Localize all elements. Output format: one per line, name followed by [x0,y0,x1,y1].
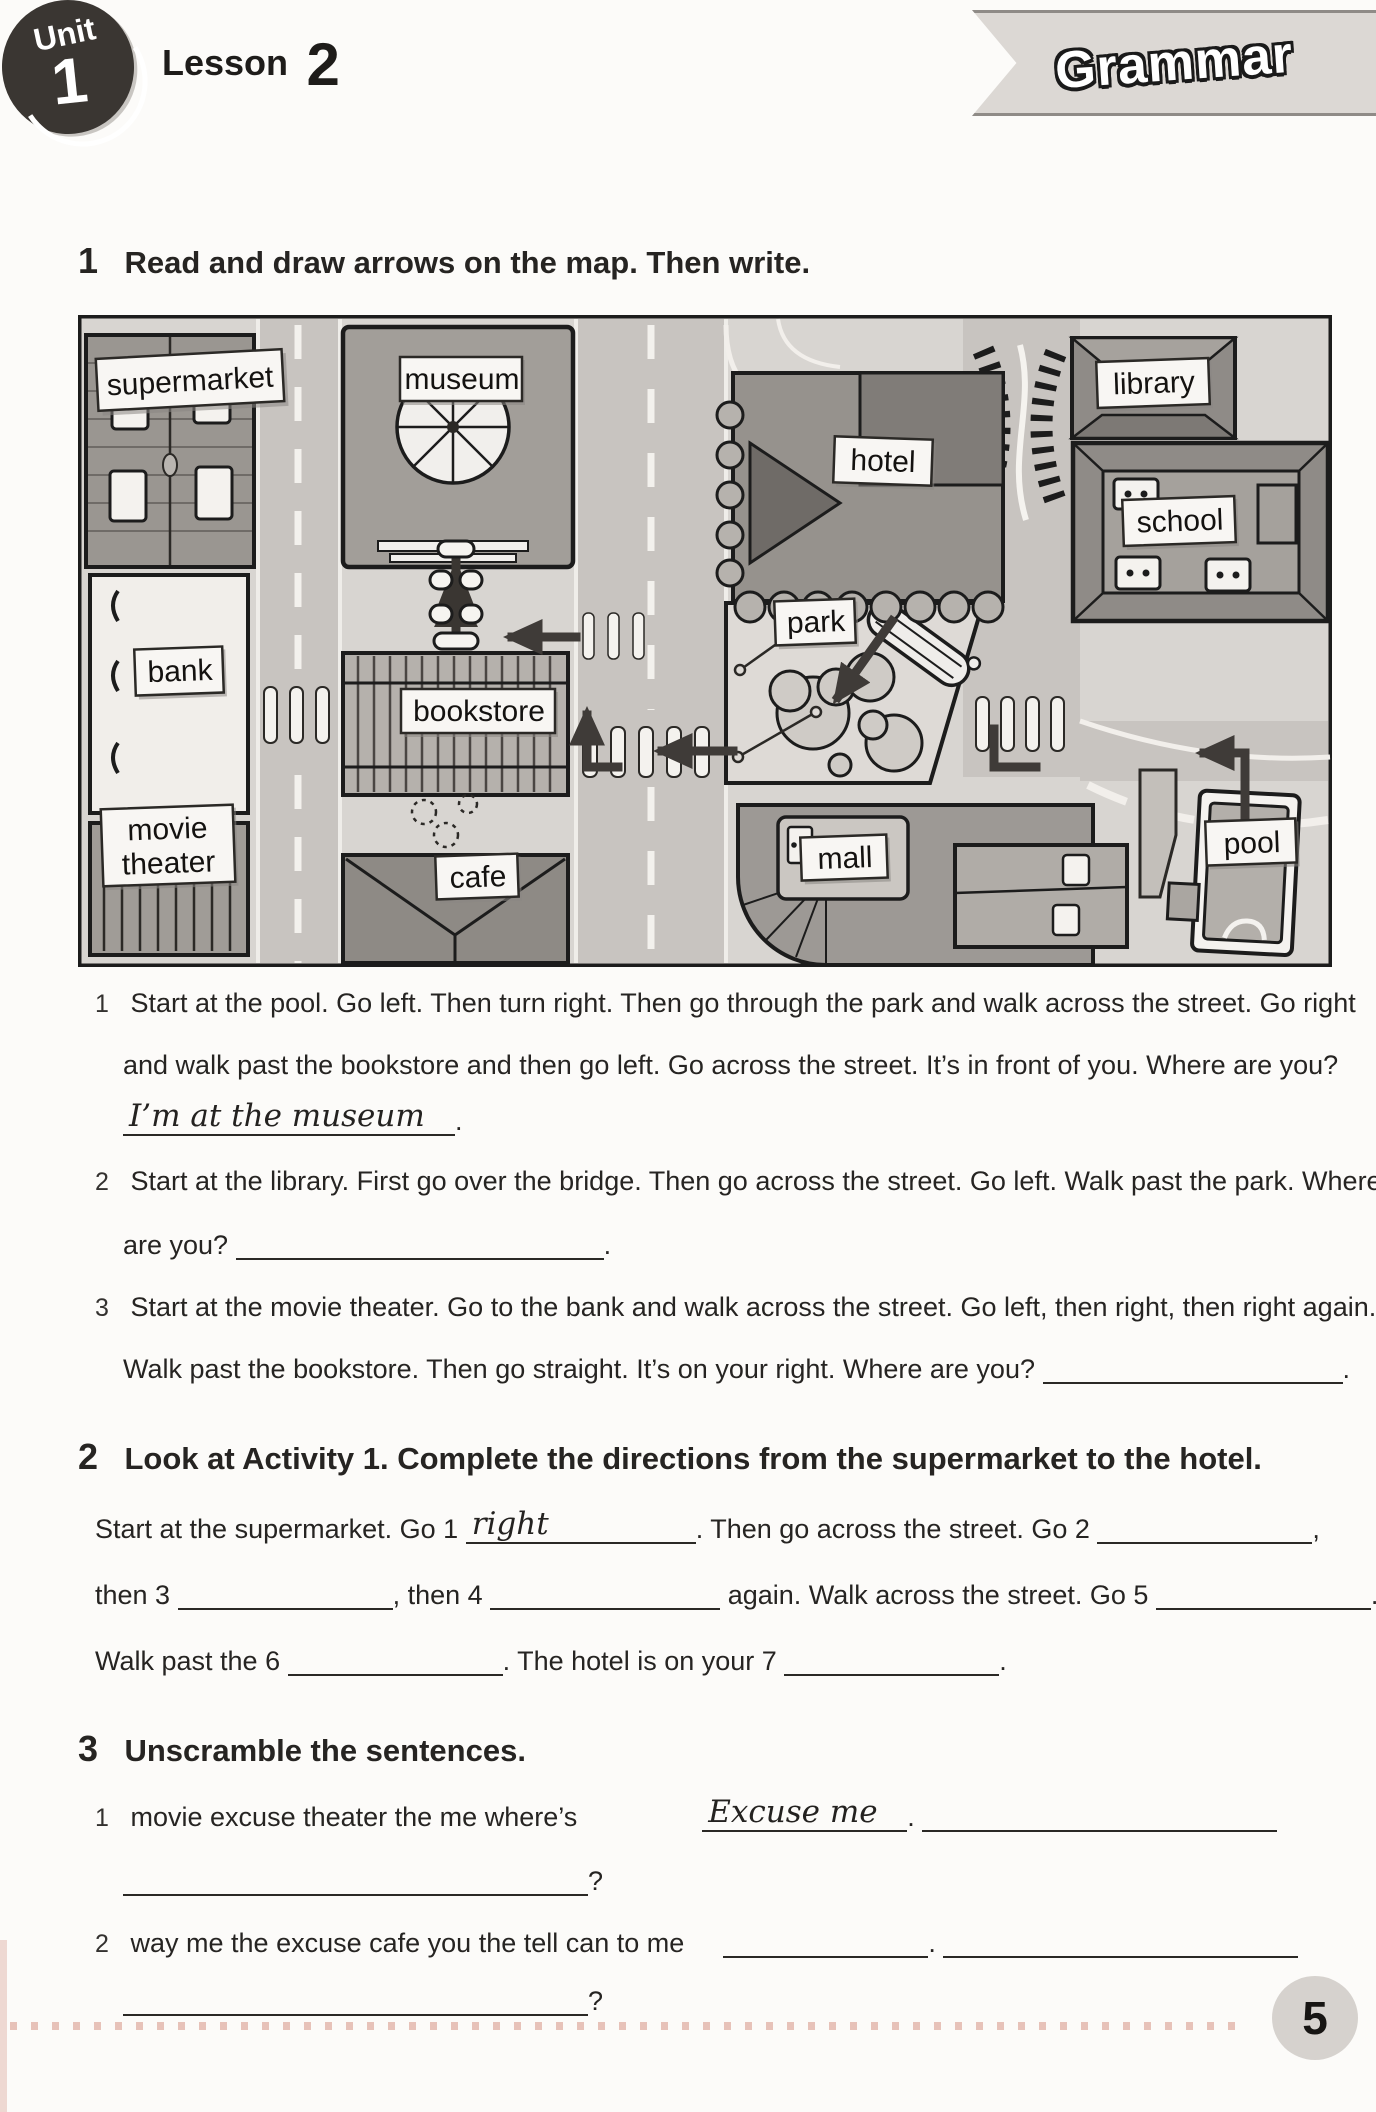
page-edge-strip [0,1940,7,2112]
a3-item2-row1: 2 way me the excuse cafe you the tell ca… [95,1926,1298,1959]
q1-handwritten-answer: I’m at the museum [129,1098,425,1134]
svg-text:mall: mall [817,841,873,876]
q2-line2: are you? . [123,1228,611,1261]
a2-blank-2[interactable] [1097,1512,1312,1544]
town-map-canvas[interactable]: supermarket museum hotel library school … [78,315,1332,967]
a3-item1-handwritten: Excuse me [708,1794,877,1830]
workbook-page: Unit 1 Lesson 2 Grammar 1 Read and draw … [0,0,1376,2112]
label-school: school [1122,496,1239,550]
activity2-title: Look at Activity 1. Complete the directi… [124,1441,1261,1476]
activity1-number: 1 [78,240,98,281]
a2-handwritten-1: right [472,1506,549,1542]
label-library: library [1096,358,1213,412]
a3-item1-blank-1[interactable]: Excuse me [702,1800,907,1832]
q1-answer-blank[interactable]: I’m at the museum [123,1104,455,1136]
a2-blank-7[interactable] [784,1644,999,1676]
activity3-number: 3 [78,1728,98,1769]
label-pool: pool [1205,818,1300,869]
a3-item1-number: 1 [95,1804,123,1833]
q1-number: 1 [95,990,123,1019]
a2-blank-4[interactable] [490,1578,720,1610]
label-hotel: hotel [833,436,936,489]
a3-item1-blank-3[interactable] [123,1864,588,1896]
a3-item2-row2: ? [123,1984,603,2017]
hotel-building [717,373,1003,622]
lesson-number: 2 [307,31,340,98]
footer-dotted-line [10,2022,1245,2030]
a3-item2-blank-2[interactable] [943,1926,1298,1958]
a3-item1-blank-2[interactable] [922,1800,1277,1832]
label-museum: museum [400,357,525,405]
grammar-ribbon-label: Grammar [1053,25,1295,101]
svg-text:park: park [786,605,846,640]
a3-item1-row2: ? [123,1864,603,1897]
svg-text:bank: bank [147,654,214,689]
svg-text:library: library [1113,366,1196,402]
svg-text:cafe: cafe [449,860,507,895]
activity3-title: Unscramble the sentences. [124,1733,525,1768]
unit-badge: Unit 1 [0,0,141,141]
label-supermarket: supermarket [96,349,289,416]
q3-line2: Walk past the bookstore. Then go straigh… [123,1352,1350,1385]
q2-number: 2 [95,1168,123,1197]
label-bookstore: bookstore [401,689,558,737]
q3-line1: 3 Start at the movie theater. Go to the … [95,1292,1376,1323]
label-bank: bank [134,646,227,699]
a3-item1-row1: 1 movie excuse theater the me where’s Ex… [95,1800,1277,1833]
q1-line1: 1 Start at the pool. Go left. Then turn … [95,988,1356,1019]
q3-number: 3 [95,1294,123,1323]
unit-word: Unit [0,3,133,67]
page-number-badge: 5 [1272,1976,1358,2060]
svg-text:bookstore: bookstore [413,695,545,728]
town-map[interactable]: supermarket museum hotel library school … [78,315,1332,972]
lesson-word: Lesson [162,42,288,83]
label-park: park [774,599,859,650]
activity3-heading: 3 Unscramble the sentences. [78,1728,526,1770]
activity1-heading: 1 Read and draw arrows on the map. Then … [78,240,810,282]
a2-blank-3[interactable] [178,1578,393,1610]
a3-item2-number: 2 [95,1930,123,1959]
lesson-title: Lesson 2 [162,30,340,99]
activity2-heading: 2 Look at Activity 1. Complete the direc… [78,1436,1262,1478]
label-cafe: cafe [435,854,522,904]
a2-line1: Start at the supermarket. Go 1 right. Th… [95,1512,1320,1545]
svg-text:museum: museum [404,363,519,396]
q1-line2: and walk past the bookstore and then go … [123,1050,1338,1081]
q2-line1: 2 Start at the library. First go over th… [95,1166,1376,1197]
activity2-number: 2 [78,1436,98,1477]
svg-text:movie: movie [127,812,208,848]
activity1-title: Read and draw arrows on the map. Then wr… [124,245,810,280]
svg-text:theater: theater [121,845,216,881]
svg-text:hotel: hotel [850,444,916,479]
a2-line3: Walk past the 6 . The hotel is on your 7… [95,1644,1007,1677]
q1-answer-row: I’m at the museum. [123,1104,463,1137]
a2-blank-6[interactable] [288,1644,503,1676]
a2-blank-1[interactable]: right [466,1512,696,1544]
svg-text:school: school [1136,503,1224,539]
q3-answer-blank[interactable] [1043,1352,1343,1384]
a2-line2: then 3 , then 4 again. Walk across the s… [95,1578,1376,1611]
a3-item2-blank-1[interactable] [723,1926,928,1958]
label-mall: mall [800,834,891,884]
svg-text:pool: pool [1223,826,1281,861]
a3-item2-blank-3[interactable] [123,1984,588,2016]
page-number: 5 [1302,1991,1328,2045]
label-movie-theater: movie theater [101,805,239,891]
low-building [955,845,1127,947]
a2-blank-5[interactable] [1156,1578,1371,1610]
q2-answer-blank[interactable] [236,1228,604,1260]
grammar-ribbon: Grammar [972,10,1376,116]
